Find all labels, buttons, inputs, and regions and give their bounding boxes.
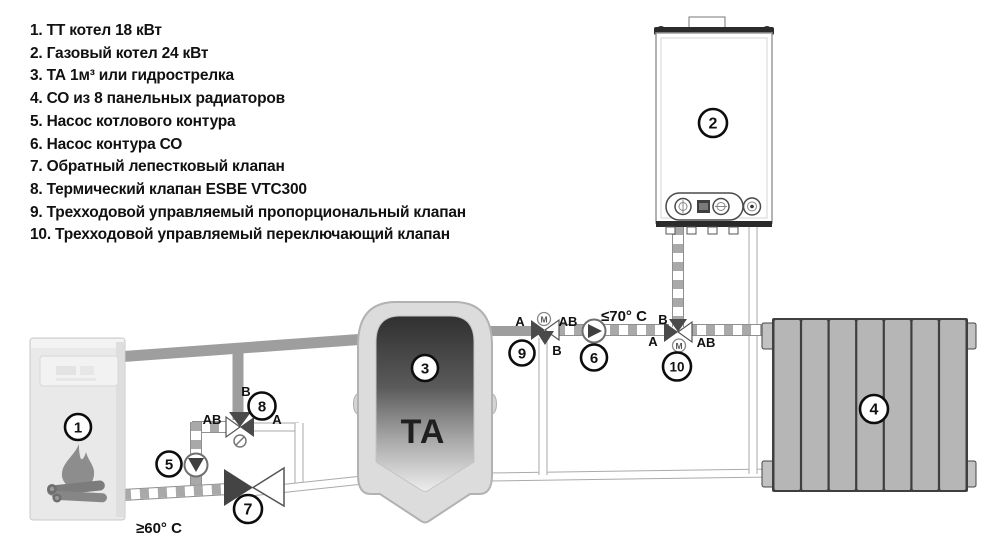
valve9-ab-label: AB — [559, 314, 578, 329]
valve10-a-label: A — [648, 334, 658, 349]
legend-item: 2. Газовый котел 24 кВт — [30, 43, 500, 66]
badge-number: 6 — [590, 350, 598, 367]
boiler-display — [40, 356, 118, 386]
valve9-a-label: A — [515, 314, 525, 329]
legend-item: 3. ТА 1м³ или гидрострелка — [30, 65, 500, 88]
pump-boiler-circuit — [185, 454, 208, 477]
motor-label: M — [540, 315, 547, 325]
heating-scheme: AVVI TA — [0, 0, 1000, 545]
legend-item: 10. Трехходовой управляемый переключающи… — [30, 224, 500, 247]
badge-4: 4 — [860, 395, 888, 423]
tank-label: TA — [401, 413, 446, 451]
supply-temp-label: ≤70° C — [601, 308, 647, 325]
valve9-b-label: B — [552, 343, 561, 358]
legend-item: 5. Насос котлового контура — [30, 111, 500, 134]
legend-item: 8. Термический клапан ESBE VTC300 — [30, 179, 500, 202]
valve8-b-label: B — [241, 384, 250, 399]
badge-number: 1 — [74, 419, 82, 436]
legend-item: 9. Трехходовой управляемый пропорциональ… — [30, 202, 500, 225]
valve10-ab-label: AB — [697, 335, 716, 350]
legend-item: 4. СО из 8 панельных радиаторов — [30, 88, 500, 111]
badge-9: 9 — [510, 341, 535, 366]
motor-label: M — [675, 341, 682, 351]
badge-7: 7 — [234, 495, 262, 523]
badge-number: 3 — [421, 360, 429, 377]
buffer-tank: TA — [354, 302, 497, 523]
badge-10: 10 — [663, 353, 691, 381]
badge-number: 5 — [165, 456, 173, 473]
valve10-b-label: B — [658, 312, 667, 327]
badge-6: 6 — [581, 345, 607, 371]
badge-number: 2 — [709, 116, 718, 133]
badge-number: 9 — [518, 345, 526, 362]
badge-3: 3 — [412, 355, 438, 381]
thermic-valve — [226, 412, 254, 447]
badge-number: 10 — [669, 359, 684, 374]
badge-8: 8 — [249, 393, 276, 420]
switching-valve: M — [664, 319, 692, 352]
legend-item: 6. Насос контура СО — [30, 134, 500, 157]
return-temp-label: ≥60° C — [136, 520, 182, 537]
proportional-valve: M — [531, 313, 559, 346]
badge-1: 1 — [65, 414, 91, 440]
badge-2: 2 — [699, 109, 727, 137]
badge-number: 4 — [870, 402, 879, 419]
badge-5: 5 — [157, 452, 182, 477]
legend-item: 1. ТТ котел 18 кВт — [30, 20, 500, 43]
badge-number: 8 — [258, 398, 266, 415]
legend: 1. ТТ котел 18 кВт2. Газовый котел 24 кВ… — [30, 20, 500, 247]
valve8-ab-label: AB — [203, 412, 222, 427]
legend-item: 7. Обратный лепестковый клапан — [30, 156, 500, 179]
badge-number: 7 — [244, 502, 253, 519]
